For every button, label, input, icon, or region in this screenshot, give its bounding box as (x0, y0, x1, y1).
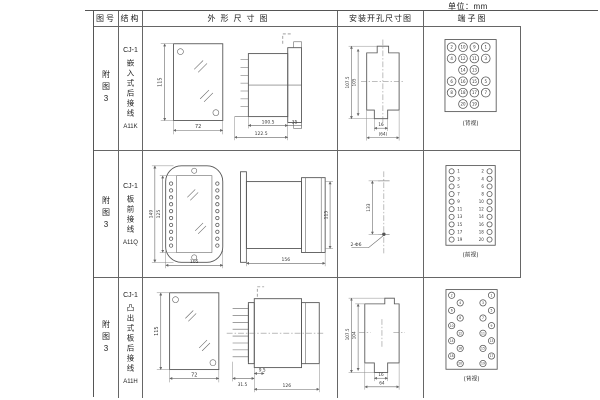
side-view: 100.5 122.5 35 (235, 34, 302, 140)
install-dims: 107.5 105 16 (64) (345, 47, 399, 141)
structure-cell-row2: CJ-1 板前接线 A11Q (119, 151, 143, 278)
terminal-number: 12 (479, 207, 485, 212)
install-diagram-row3: 107.5 104 16 64 (340, 281, 422, 394)
figure-no-row3: 附图3 (101, 320, 112, 357)
terminal-number: 15 (457, 222, 463, 227)
outline-cell-row2: 149 125 105 (143, 151, 338, 278)
terminal-number: 18 (479, 229, 485, 234)
terminal-circle (487, 207, 492, 212)
install-cell-row2: 133 2-Φ6 (338, 151, 424, 278)
terminal-circle (169, 209, 172, 212)
terminal-circle (449, 169, 454, 174)
terminal-circle (216, 223, 219, 226)
terminal-number: 4 (481, 176, 484, 181)
terminal-grid-row3: 2610141848121620371115191591317 (448, 292, 494, 367)
dim-body-len: 100.5 (262, 120, 275, 126)
dim-inner-height: 125 (156, 210, 162, 219)
structure-desc: 凸出式板后接线 (125, 304, 136, 374)
terminal-cell-row2: 1357911131517192468101214161820 (前视) (424, 151, 521, 278)
terminal-number: 13 (489, 339, 493, 343)
model-label: CJ-1 (123, 47, 138, 54)
terminal-circle (216, 237, 219, 240)
hole-layout: 133 2-Φ6 (350, 171, 389, 253)
terminal-number: 20 (460, 101, 466, 106)
dim-inner-height: 105 (351, 78, 356, 86)
front-view: 115 72 (154, 293, 219, 383)
terminal-number: 17 (489, 354, 493, 358)
header-figure-no: 图号 (94, 11, 119, 27)
dim-outer-height: 107.5 (345, 76, 350, 88)
outline-cell-row1: 115 72 1 (143, 27, 338, 151)
outline-cell-row3: 115 72 3 (143, 278, 338, 398)
terminal-number: 13 (457, 214, 463, 219)
cutout-shape (359, 298, 405, 372)
terminal-number: 3 (457, 176, 460, 181)
terminal-number: 15 (472, 78, 478, 83)
dim-hole-spacing: 133 (366, 203, 372, 212)
dim-outer-height: 149 (148, 210, 154, 219)
terminal-number: 9 (490, 323, 492, 327)
terminal-number: 20 (479, 237, 485, 242)
type-code: A11H (123, 379, 138, 385)
terminal-circle (169, 202, 172, 205)
dim-front-width: 105 (190, 259, 199, 265)
terminal-number: 7 (457, 192, 460, 197)
type-code: A11K (123, 124, 137, 130)
terminal-number: 12 (460, 56, 466, 61)
terminal-circle (169, 216, 172, 219)
terminal-circle (487, 169, 492, 174)
terminal-number: 19 (481, 361, 485, 365)
terminal-number: 16 (479, 222, 485, 227)
terminal-circle (169, 196, 172, 199)
terminal-circle (216, 230, 219, 233)
side-view: 31.5 9.5 126 (227, 287, 325, 392)
figure-no-row2: 附图3 (101, 196, 112, 233)
terminal-number: 19 (472, 101, 478, 106)
terminal-circle (449, 229, 454, 234)
terminal-number: 12 (458, 331, 462, 335)
terminal-circle (487, 237, 492, 242)
outline-diagram-row1: 115 72 1 (144, 28, 336, 148)
terminal-number: 17 (457, 229, 463, 234)
terminal-cell-row3: 2610141848121620371115191591317 (背视) (424, 278, 521, 398)
terminal-number: 2 (481, 169, 484, 174)
cutout-shape (360, 40, 404, 126)
terminal-number: 6 (450, 308, 452, 312)
terminal-circle (216, 216, 219, 219)
terminal-number: 1 (490, 293, 492, 297)
hole-label: 2-Φ6 (350, 242, 361, 248)
install-diagram-row2: 133 2-Φ6 (340, 158, 422, 271)
structure-desc: 板前接线 (125, 195, 136, 235)
dim-front-width: 72 (195, 124, 201, 130)
terminal-circle (216, 209, 219, 212)
structure-cell-row1: CJ-1 嵌入式后接线 A11K (119, 27, 143, 151)
terminal-number: 1 (457, 169, 460, 174)
structure-cell-row3: CJ-1 凸出式板后接线 A11H (119, 278, 143, 398)
terminal-number: 8 (459, 316, 461, 320)
figure-no-row1: 附图3 (101, 70, 112, 107)
dim-front-height: 115 (158, 78, 164, 87)
side-view: 156 115 (240, 172, 333, 267)
terminal-grid-row1: 2109141211314136161558181772019 (447, 42, 490, 108)
terminal-circle (216, 202, 219, 205)
dim-front-width: 72 (191, 373, 197, 379)
terminal-number: 5 (490, 308, 492, 312)
terminal-circle (216, 244, 219, 247)
header-terminal: 端子图 (424, 11, 521, 27)
terminal-circle (487, 199, 492, 204)
terminal-circle (449, 222, 454, 227)
terminal-number: 10 (460, 44, 466, 49)
terminal-grid-row2: 1357911131517192468101214161820 (449, 169, 492, 242)
terminal-circle (169, 237, 172, 240)
outline-diagram-row2: 149 125 105 (144, 156, 336, 272)
install-diagram-row1: 107.5 105 16 (64) (340, 30, 422, 146)
terminal-number: 7 (481, 316, 483, 320)
terminal-number: 11 (457, 207, 463, 212)
terminal-circle (216, 196, 219, 199)
view-label: (背视) (463, 374, 479, 382)
terminal-number: 3 (481, 301, 483, 305)
terminal-number: 16 (460, 78, 466, 83)
terminal-circle (487, 184, 492, 189)
model-label: CJ-1 (123, 292, 138, 299)
terminal-circle (449, 237, 454, 242)
terminal-number: 15 (481, 346, 485, 350)
terminal-number: 4 (459, 301, 461, 305)
terminal-circle (216, 182, 219, 185)
dim-side-height: 115 (324, 211, 330, 220)
dim-front-height: 115 (154, 327, 160, 336)
structure-row1: CJ-1 嵌入式后接线 A11K (123, 47, 138, 130)
front-view: 115 72 (158, 44, 223, 135)
terminal-number: 2 (450, 293, 452, 297)
install-dims: 107.5 104 16 64 (345, 298, 399, 390)
dim-slot-width: 16 (378, 122, 384, 127)
terminal-circle (169, 182, 172, 185)
dim-total-width: 64 (379, 381, 385, 386)
spec-table: 图号 结构 外形尺寸图 安装开孔尺寸图 端子图 附图3 CJ-1 嵌入式后接线 … (93, 10, 520, 397)
terminal-diagram-row3: 2610141848121620371115191591317 (背视) (427, 282, 519, 395)
terminal-number: 14 (460, 67, 466, 72)
terminal-number: 10 (449, 323, 453, 327)
dim-body-len: 156 (281, 257, 290, 263)
install-cell-row1: 107.5 105 16 (64) (338, 27, 424, 151)
terminal-number: 5 (457, 184, 460, 189)
outline-diagram-row3: 115 72 3 (144, 279, 336, 396)
dim-slot-width: 16 (378, 372, 384, 377)
terminal-circle (487, 192, 492, 197)
terminal-diagram-row2: 1357911131517192468101214161820 (前视) (426, 158, 518, 270)
terminal-circle (449, 207, 454, 212)
terminal-circle (487, 229, 492, 234)
terminal-circle (449, 199, 454, 204)
terminal-circle (449, 214, 454, 219)
figure-no-cell-row3: 附图3 (94, 278, 119, 398)
terminal-circle (487, 222, 492, 227)
terminal-number: 16 (458, 346, 462, 350)
terminal-number: 20 (458, 361, 462, 365)
header-structure: 结构 (119, 11, 143, 27)
terminal-number: 18 (449, 354, 453, 358)
dim-inner-height: 104 (351, 331, 356, 339)
terminal-circle (449, 176, 454, 181)
terminal-circle (169, 223, 172, 226)
structure-desc: 嵌入式后接线 (125, 59, 136, 119)
figure-no-cell-row1: 附图3 (94, 27, 119, 151)
terminal-number: 14 (449, 339, 453, 343)
terminal-cell-row1: 2109141211314136161558181772019 (背视) (424, 27, 521, 151)
structure-row3: CJ-1 凸出式板后接线 A11H (123, 292, 138, 385)
terminal-number: 18 (460, 90, 466, 95)
dim-body-len: 126 (282, 384, 291, 390)
figure-no-cell-row2: 附图3 (94, 151, 119, 278)
terminal-screws (169, 182, 219, 247)
document-page: 单位：mm 图号 结构 外形尺寸图 安装开孔尺寸图 端子图 附图3 CJ-1 嵌… (0, 0, 600, 400)
terminal-number: 13 (472, 67, 478, 72)
terminal-number: 6 (481, 184, 484, 189)
terminal-circle (216, 189, 219, 192)
terminal-circle (169, 230, 172, 233)
header-install: 安装开孔尺寸图 (338, 11, 424, 27)
terminal-number: 11 (472, 56, 478, 61)
dim-total-width: (64) (378, 132, 387, 137)
terminal-number: 8 (481, 192, 484, 197)
terminal-circle (487, 176, 492, 181)
dim-pin-len: 31.5 (238, 382, 248, 388)
terminal-circle (169, 244, 172, 247)
terminal-number: 11 (481, 331, 485, 335)
model-label: CJ-1 (123, 183, 138, 190)
terminal-number: 9 (457, 199, 460, 204)
terminal-circle (449, 184, 454, 189)
structure-row2: CJ-1 板前接线 A11Q (123, 183, 138, 246)
terminal-number: 19 (457, 237, 463, 242)
terminal-number: 10 (479, 199, 485, 204)
view-label: (背视) (463, 119, 479, 127)
terminal-circle (449, 192, 454, 197)
terminal-circle (169, 189, 172, 192)
terminal-circle (487, 214, 492, 219)
terminal-diagram-row1: 2109141211314136161558181772019 (背视) (426, 31, 518, 147)
view-label: (前视) (463, 251, 479, 259)
dim-total-len: 122.5 (255, 132, 268, 138)
dim-outer-height: 107.5 (345, 328, 350, 340)
terminal-number: 14 (479, 214, 485, 219)
dim-gap: 9.5 (259, 368, 266, 374)
terminal-number: 17 (472, 90, 478, 95)
front-view: 149 125 105 (148, 166, 222, 268)
type-code: A11Q (123, 240, 138, 246)
dim-flange: 35 (292, 120, 298, 126)
install-cell-row3: 107.5 104 16 64 (338, 278, 424, 398)
header-outline: 外形尺寸图 (143, 11, 338, 27)
